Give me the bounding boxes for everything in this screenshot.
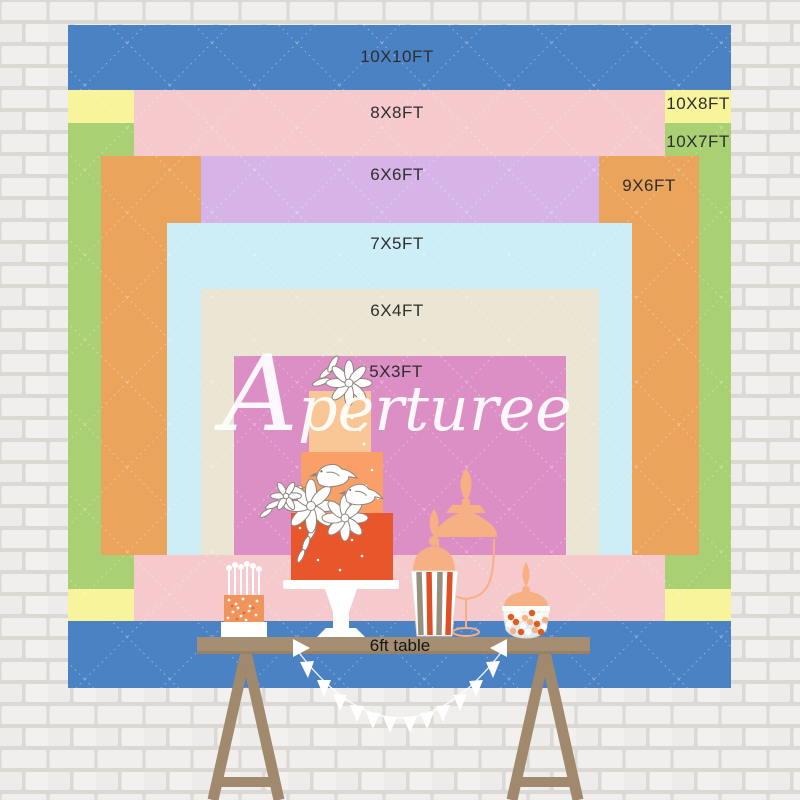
label-7x5ft: 7X5FT: [370, 234, 424, 253]
label-6ft-table: 6ft table: [370, 636, 431, 655]
label-6x4ft: 6X4FT: [370, 301, 424, 320]
label-10x7ft: 10X7FT: [666, 132, 729, 151]
label-10x8ft: 10X8FT: [666, 94, 729, 113]
label-5x3ft: 5X3FT: [369, 362, 423, 381]
diamond-stitch-overlay: [68, 25, 731, 688]
label-10x10ft: 10X10FT: [360, 47, 433, 66]
scene: Aperturee 10X10FT 8X8FT 10X8FT 10X7FT 9X…: [0, 0, 800, 800]
label-6x6ft: 6X6FT: [370, 165, 424, 184]
label-8x8ft: 8X8FT: [370, 103, 424, 122]
backdrop-product-image: Aperturee 10X10FT 8X8FT 10X8FT 10X7FT 9X…: [0, 0, 800, 800]
label-9x6ft: 9X6FT: [622, 176, 676, 195]
